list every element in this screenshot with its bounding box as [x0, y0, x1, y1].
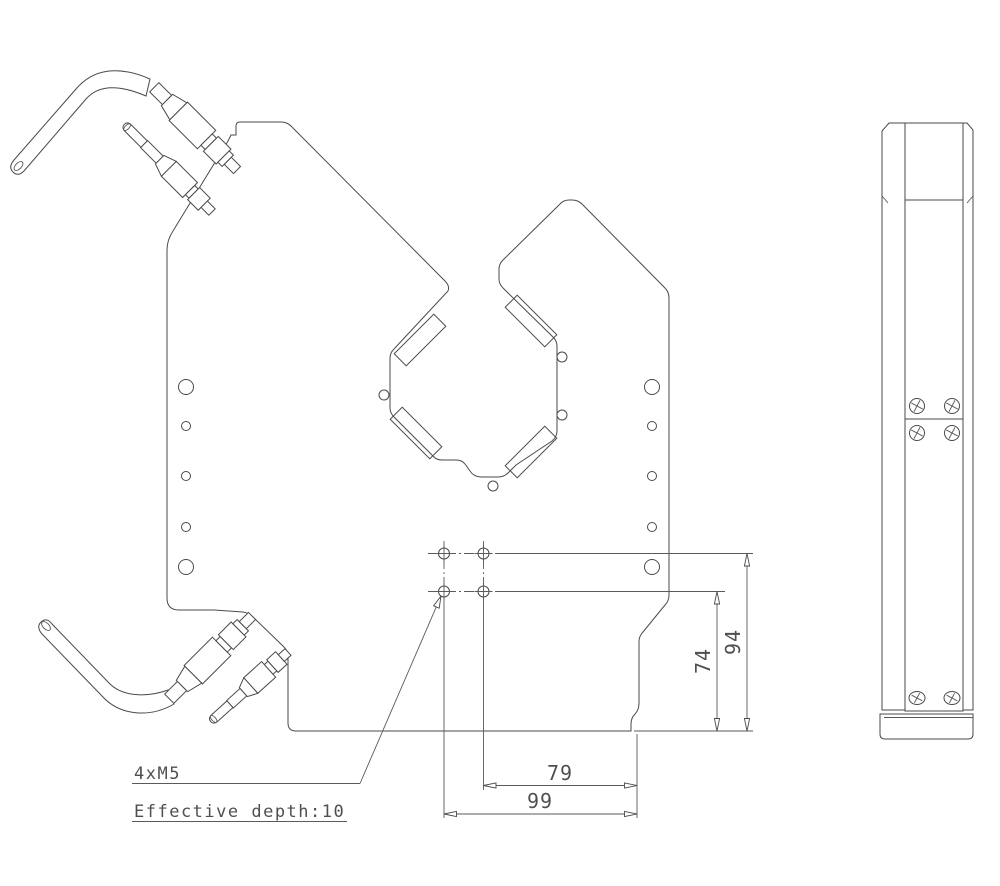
- thread-callout-text: 4xM5: [134, 764, 181, 784]
- phillips-screw-icon: [943, 397, 961, 415]
- pocket-slot-se: [505, 426, 557, 478]
- phillips-screw-icon: [944, 690, 960, 705]
- pocket-pin-holes: [379, 352, 567, 491]
- dim-label-99: 99: [527, 789, 553, 813]
- cable-bottom-outer: [39, 620, 174, 713]
- side-center-body: [905, 123, 963, 711]
- mounting-holes-m5: [428, 541, 497, 603]
- phillips-screw-icon: [908, 424, 926, 442]
- right-hole-column: [645, 380, 660, 575]
- m5-hole: [435, 583, 453, 601]
- side-right-rail: [963, 123, 973, 710]
- phillips-screw-icon: [943, 424, 961, 442]
- m5-hole: [475, 545, 493, 563]
- dim-label-79: 79: [547, 761, 573, 785]
- phillips-screw-icon: [909, 690, 925, 705]
- m5-hole: [435, 545, 453, 563]
- dimension-94: 94: [497, 554, 753, 732]
- m5-hole: [475, 583, 493, 601]
- technical-drawing-sheet: 94 74 79 99 4xM5 Effective depth:10: [0, 0, 1000, 886]
- pocket-slot-ne: [505, 295, 557, 347]
- dimension-79: 79: [484, 603, 638, 818]
- left-hole-column: [179, 380, 194, 575]
- dim-label-94: 94: [721, 629, 745, 655]
- cable-assembly-top-left: [11, 71, 246, 220]
- side-view: [880, 123, 973, 739]
- side-left-rail: [882, 123, 905, 710]
- cable-assembly-bottom-left: [39, 607, 295, 730]
- dim-label-74: 74: [691, 648, 715, 674]
- pocket-slot-sw: [390, 407, 442, 459]
- cable-top-outer: [11, 71, 150, 175]
- phillips-screw-icon: [908, 397, 926, 415]
- dimension-74: 74: [497, 592, 725, 732]
- depth-note-text: Effective depth:10: [134, 802, 345, 822]
- thread-callout: 4xM5 Effective depth:10: [132, 596, 441, 822]
